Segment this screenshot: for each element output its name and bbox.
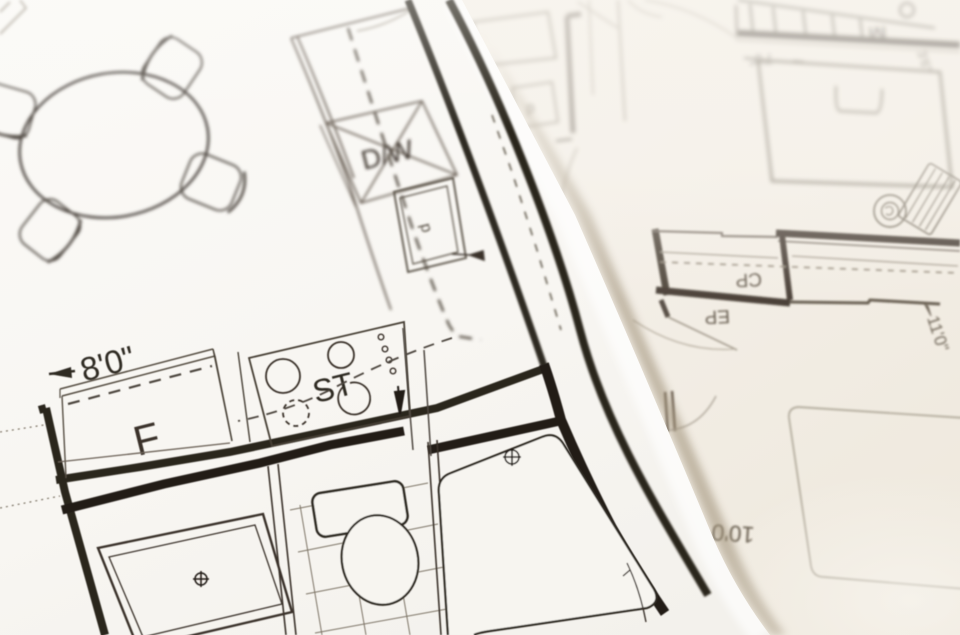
svg-text:EP: EP [704,305,730,327]
